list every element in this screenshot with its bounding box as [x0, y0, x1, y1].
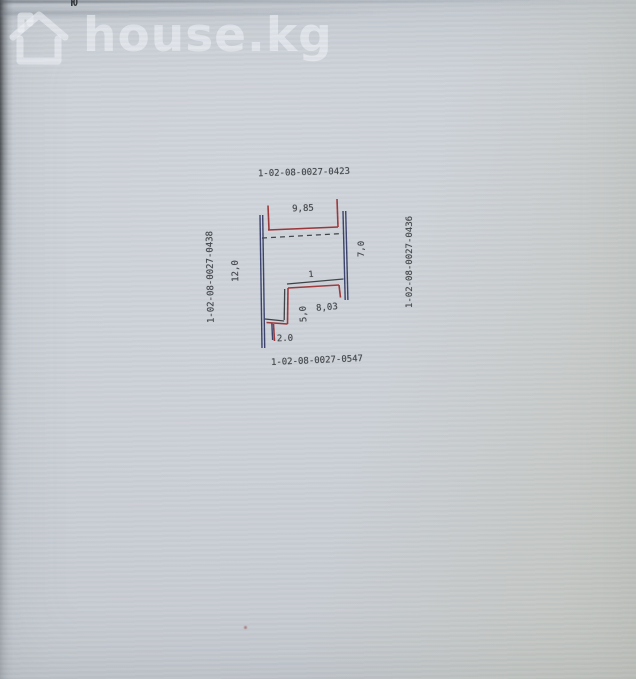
dashed-boundary-line: [262, 234, 343, 239]
right-boundary-line: [346, 211, 348, 300]
top-red-line: [268, 227, 338, 230]
top-right-tick: [337, 199, 338, 227]
left-boundary-line: [260, 215, 262, 348]
bottom-red-line: [267, 323, 288, 325]
inner-boundary-line: [287, 279, 344, 284]
dust-speck: [244, 626, 247, 629]
left-boundary-line: [263, 215, 265, 348]
step-red-line: [288, 288, 289, 324]
mid-red-line: [288, 285, 339, 288]
scanned-cadastral-plan-photo: Ю house.kg: [0, 0, 636, 679]
dimension-left-height: 12,0: [231, 260, 241, 282]
dimension-top-width: 9,85: [292, 204, 314, 215]
dimension-inner-height: 5,0: [299, 306, 310, 323]
top-left-tick: [268, 206, 269, 231]
inner-step-line: [284, 289, 285, 320]
dimension-bottom-offset: 2.0: [277, 334, 294, 345]
parcel-number-left: 1-02-08-0027-0438: [205, 231, 217, 323]
point-label: 1: [308, 270, 314, 280]
right-boundary-line: [343, 211, 345, 300]
mid-right-red-line: [339, 285, 341, 298]
bottom-channel-line: [272, 323, 273, 341]
dimension-inner-width: 8,03: [316, 302, 338, 314]
dimension-right-height: 7,0: [357, 241, 367, 257]
channel-red-line: [274, 324, 275, 341]
inner-bottom-line: [265, 319, 284, 321]
cadastral-plan-drawing: [0, 0, 636, 679]
parcel-number-right: 1-02-08-0027-0436: [405, 216, 415, 308]
